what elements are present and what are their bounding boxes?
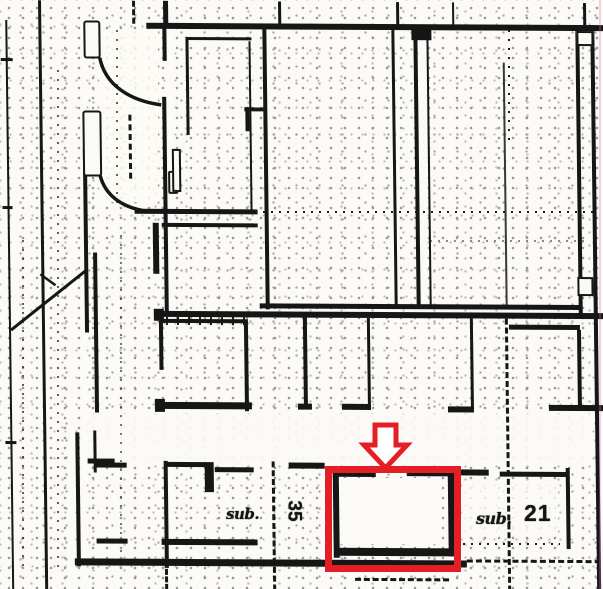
floor-plan-scan: sub. 35 sub. 21: [0, 0, 603, 589]
arrow-down-icon: [364, 425, 407, 468]
arrow-overlay: [0, 0, 603, 589]
annotation-layer: [0, 0, 603, 589]
